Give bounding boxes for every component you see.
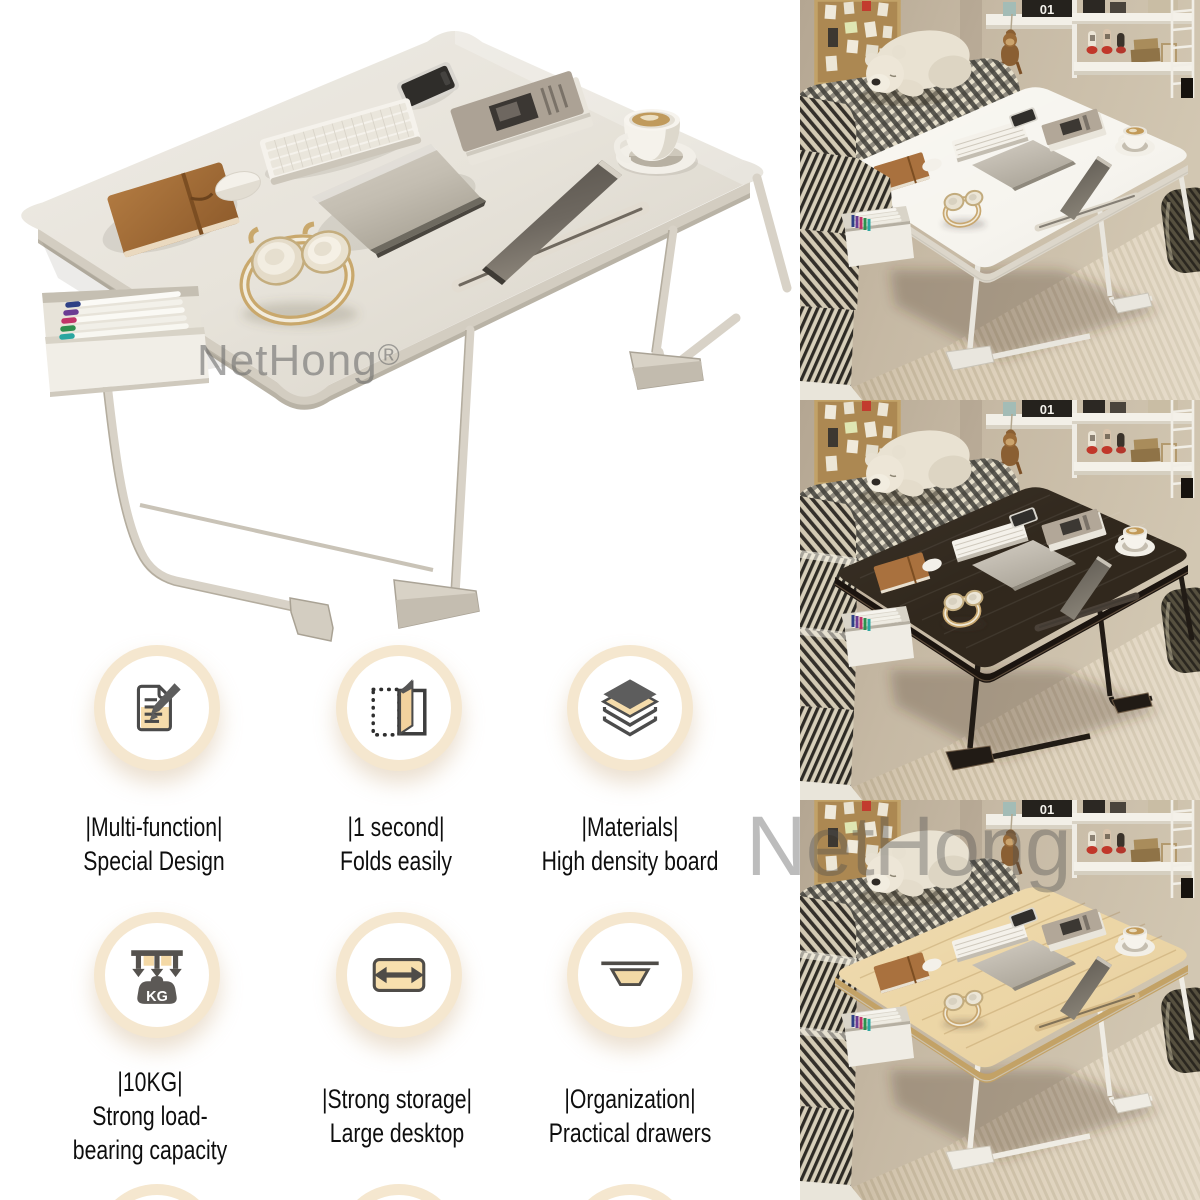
svg-text:KG: KG (146, 989, 168, 1005)
